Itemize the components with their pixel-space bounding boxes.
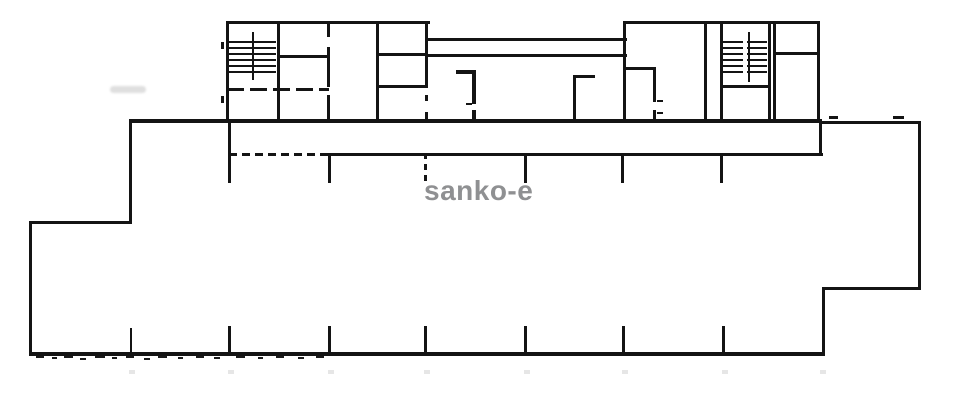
band-left-closure <box>228 121 231 183</box>
scan-ghost <box>129 370 135 374</box>
right-block-right-wall <box>817 21 820 122</box>
band-tick <box>720 153 723 183</box>
speck <box>316 356 324 358</box>
stair-tread <box>747 65 767 67</box>
stair-rail <box>252 32 254 80</box>
speck <box>95 356 105 358</box>
corridor-divider-upper <box>376 53 428 56</box>
stair-tread <box>747 53 767 55</box>
outline-left-lower-wall <box>29 221 32 355</box>
scan-ghost <box>820 370 826 374</box>
band-tick <box>621 153 624 183</box>
stair-tread <box>723 47 743 49</box>
corridor-right-wall-dash <box>425 112 428 120</box>
speck <box>36 356 44 358</box>
scan-ghost <box>424 370 430 374</box>
left-block-mid-wall <box>277 21 280 122</box>
stairwell-right-wall <box>768 21 771 122</box>
band-bottom-line <box>331 153 823 156</box>
outline-nub <box>893 116 904 119</box>
bottom-tick <box>328 326 331 353</box>
speck <box>126 356 134 358</box>
left-wall-nub <box>221 42 224 49</box>
partition-left-wall <box>472 70 476 122</box>
door-jamb <box>466 103 472 105</box>
outline-left-upper-wall <box>129 119 132 224</box>
stairwell-bottom-divider <box>720 85 771 88</box>
stair-tread <box>747 71 767 73</box>
corridor-right-wall-dash <box>425 95 428 101</box>
bottom-tick <box>622 326 625 353</box>
stairwell-right-wall-2 <box>773 21 776 122</box>
watermark-text: sanko-e <box>424 177 533 205</box>
stair-tread <box>723 71 743 73</box>
outline-band-top-line <box>132 119 822 123</box>
bottom-tick <box>228 326 231 353</box>
bottom-tick <box>130 328 132 353</box>
band-tick <box>328 153 331 183</box>
left-block-cell-divider <box>278 55 330 58</box>
right-block-cell-divider <box>775 52 818 55</box>
stair-tread <box>723 53 743 55</box>
stair-tread <box>747 47 767 49</box>
speck <box>178 357 183 359</box>
scan-ghost <box>622 370 628 374</box>
stair-tread <box>723 41 743 43</box>
right-block-alcove-top <box>623 67 656 70</box>
outline-right-wall <box>918 121 921 290</box>
speck <box>52 357 57 359</box>
partition-right-top <box>573 75 595 78</box>
bridge-upper-line <box>428 38 627 41</box>
partition-right-wall <box>573 75 576 122</box>
bridge-lower-line <box>428 54 627 57</box>
stair-rail <box>748 32 750 82</box>
door-opening <box>472 104 476 110</box>
right-block-left-wall <box>623 21 626 122</box>
scan-ghost <box>722 370 728 374</box>
floor-plan: sanko-e <box>0 0 956 400</box>
stair-tread <box>723 65 743 67</box>
door-jamb <box>657 112 663 114</box>
speck <box>236 356 245 358</box>
left-block-dashed-divider <box>227 88 329 91</box>
stair-tread <box>747 59 767 61</box>
speck <box>214 357 220 359</box>
right-block-alcove-wall <box>653 67 656 122</box>
stair-tread <box>747 41 767 43</box>
speck <box>80 358 86 360</box>
outline-top-right-line <box>820 121 920 124</box>
band-tick <box>524 153 527 183</box>
outline-left-step <box>29 221 131 224</box>
bottom-tick <box>722 326 725 353</box>
outline-right-step-wall <box>822 287 825 355</box>
speck <box>258 357 263 359</box>
band-bottom-dashed <box>229 153 333 156</box>
outline-nub <box>829 116 838 119</box>
right-block-mid-wall <box>704 21 707 122</box>
speck <box>298 357 304 359</box>
outline-bottom-wall <box>29 352 825 356</box>
scan-smudge <box>110 86 146 93</box>
scan-ghost <box>524 370 530 374</box>
band-right-closure <box>819 121 822 156</box>
band-tick-dashed <box>424 153 427 185</box>
door-jamb <box>657 100 663 102</box>
speck <box>144 358 150 360</box>
wall-opening <box>327 37 330 47</box>
speck <box>276 356 284 358</box>
corridor-left-wall <box>376 21 379 122</box>
speck <box>112 357 117 359</box>
corridor-divider-lower <box>376 85 428 88</box>
stair-tread <box>723 59 743 61</box>
speck <box>158 356 167 358</box>
speck <box>196 356 204 358</box>
door-opening <box>653 102 656 110</box>
scan-ghost <box>228 370 234 374</box>
left-wall-nub <box>221 96 224 103</box>
speck <box>64 356 73 358</box>
bottom-tick <box>524 326 527 353</box>
bottom-tick <box>424 326 427 353</box>
scan-ghost <box>328 370 334 374</box>
outline-right-step <box>822 287 921 290</box>
